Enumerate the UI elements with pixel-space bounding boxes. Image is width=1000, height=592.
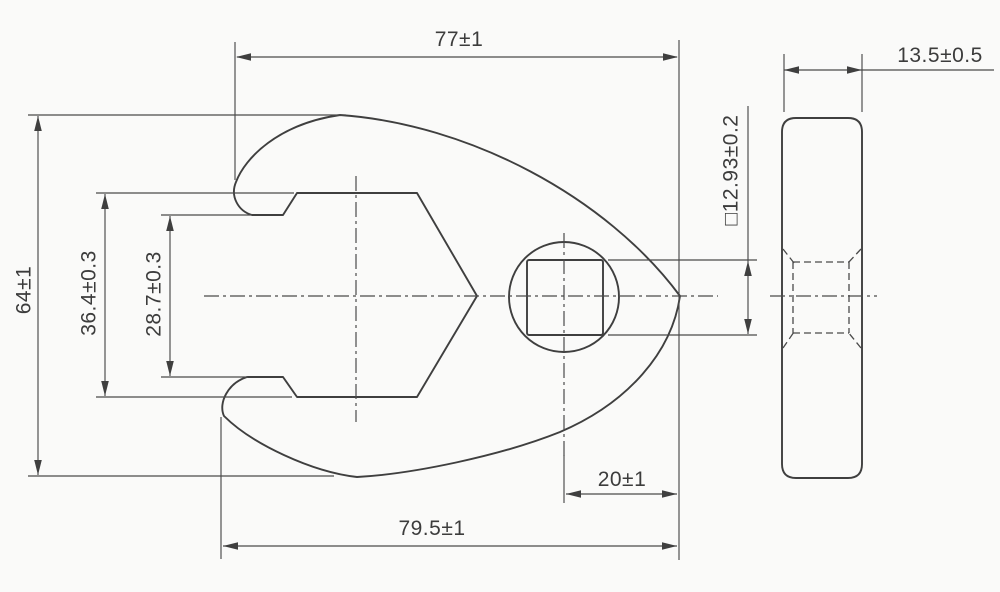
drawing-sheet: 77±1 13.5±0.5 64±1 36.4±0.3 28.7±0.3 [0,0,1000,592]
dim-label-overall-length: 79.5±1 [398,517,465,540]
dim-label-side-thickness: 13.5±0.5 [897,44,983,67]
arrow-down-icon [166,361,174,376]
hidden-chamfer-tl [783,249,794,263]
arrow-down-icon [744,319,752,334]
arrow-right-icon [662,542,677,550]
arrow-down-icon [101,381,109,396]
arrow-down-icon [34,460,42,475]
hidden-chamfer-bl [783,332,794,348]
dimension-square-drive: □12.93±0.2 [608,106,757,335]
wrench-top-view [204,115,718,477]
arrow-up-icon [166,216,174,231]
dim-label-square-drive: □12.93±0.2 [720,115,743,226]
technical-drawing-canvas: 77±1 13.5±0.5 64±1 36.4±0.3 28.7±0.3 [0,0,1000,592]
dimension-jaw-outer-flats: 36.4±0.3 [78,193,295,397]
drive-square-hole [527,260,603,335]
dim-label-drive-to-edge: 20±1 [598,468,647,491]
hidden-chamfer-tr [848,249,861,263]
side-view-outline [782,118,862,478]
dim-label-jaw-opening: 28.7±0.3 [143,251,166,337]
hidden-chamfer-br [848,332,861,348]
dim-label-overall-height: 64±1 [13,266,36,315]
arrow-left-icon [223,542,238,550]
arrow-left-icon [566,490,581,498]
arrow-up-icon [34,116,42,131]
arrow-right-icon [663,53,678,61]
dimension-side-thickness: 13.5±0.5 [784,44,994,112]
dim-label-top-width: 77±1 [435,28,484,51]
arrow-left-icon [784,66,799,74]
arrow-right-icon [662,490,677,498]
arrow-left-icon [236,53,251,61]
arrow-up-icon [744,261,752,276]
arrow-right-icon [847,66,862,74]
dimension-drive-to-edge: 20±1 [564,455,677,503]
arrow-up-icon [101,194,109,209]
wrench-side-view [770,118,877,478]
dim-label-jaw-outer: 36.4±0.3 [78,250,101,336]
